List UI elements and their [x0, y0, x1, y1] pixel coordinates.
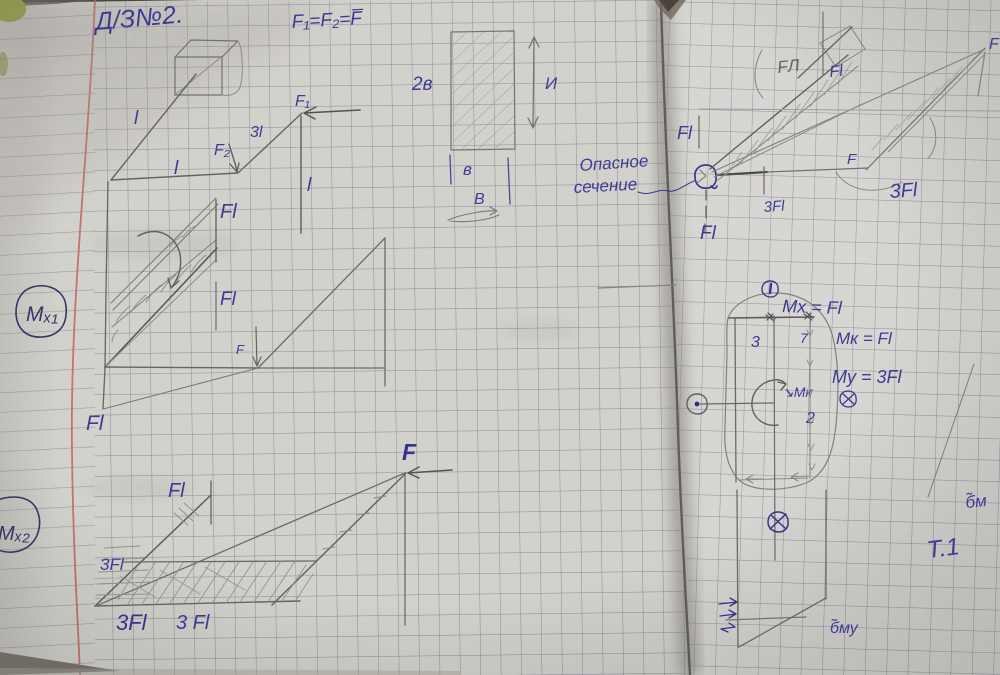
- svg-text:В: В: [474, 191, 485, 208]
- svg-text:Fl: Fl: [220, 289, 237, 310]
- svg-text:Fl: Fl: [86, 412, 105, 435]
- svg-text:Mₓ₂: Mₓ₂: [0, 523, 30, 545]
- svg-text:3Fl: 3Fl: [100, 555, 125, 574]
- svg-text:сечение: сечение: [573, 175, 637, 197]
- svg-text:F: F: [847, 151, 857, 168]
- svg-text:Fl: Fl: [677, 123, 693, 143]
- svg-text:Fl: Fl: [829, 63, 844, 81]
- svg-text:Mx = Fl: Mx = Fl: [782, 296, 843, 318]
- svg-text:И: И: [545, 74, 558, 93]
- svg-text:Fl: Fl: [220, 201, 237, 223]
- svg-text:б̃м: б̃м: [965, 490, 988, 512]
- svg-text:в: в: [463, 160, 472, 179]
- svg-text:2в: 2в: [411, 74, 433, 95]
- svg-text:3: 3: [751, 334, 760, 351]
- svg-text:My = 3Fl: My = 3Fl: [832, 367, 903, 387]
- svg-text:3Fl: 3Fl: [116, 610, 148, 635]
- svg-text:F₁: F₁: [295, 93, 310, 110]
- svg-text:Mк = Fl: Mк = Fl: [836, 329, 893, 348]
- svg-text:F: F: [989, 36, 1000, 53]
- svg-text:Fl: Fl: [700, 223, 717, 244]
- svg-text:3Fl: 3Fl: [889, 179, 919, 203]
- svg-text:F: F: [236, 342, 245, 357]
- svg-text:F: F: [402, 439, 417, 465]
- svg-text:Mₓ₁: Mₓ₁: [26, 303, 58, 326]
- svg-text:Fl: Fl: [168, 480, 185, 502]
- svg-text:3l: 3l: [250, 124, 263, 141]
- svg-text:F₁=F₂=F̅: F₁=F₂=F̅: [291, 8, 365, 33]
- svg-text:F₂: F₂: [214, 142, 230, 159]
- svg-text:3 Fl: 3 Fl: [176, 612, 210, 634]
- svg-text:Т.1: Т.1: [925, 533, 961, 564]
- svg-text:б̃му: б̃му: [830, 617, 859, 637]
- svg-text:3Fl: 3Fl: [763, 198, 786, 216]
- svg-text:↘Mк: ↘Mк: [782, 384, 813, 400]
- svg-text:FЛ: FЛ: [776, 56, 800, 77]
